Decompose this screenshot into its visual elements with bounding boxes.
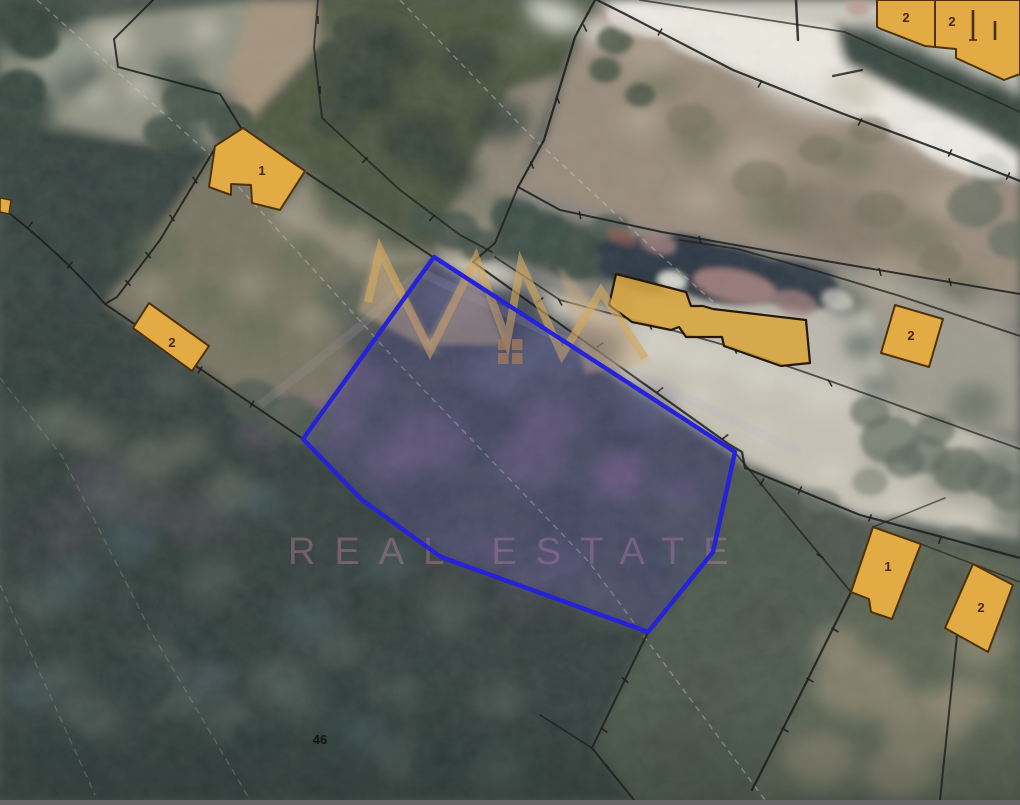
svg-text:1: 1 <box>884 559 891 574</box>
svg-text:2: 2 <box>948 14 955 29</box>
svg-text:2: 2 <box>907 328 914 343</box>
svg-text:2: 2 <box>902 10 909 25</box>
svg-text:2: 2 <box>168 335 175 350</box>
svg-text:46: 46 <box>313 732 327 747</box>
svg-text:1: 1 <box>258 163 265 178</box>
svg-text:2: 2 <box>977 600 984 615</box>
